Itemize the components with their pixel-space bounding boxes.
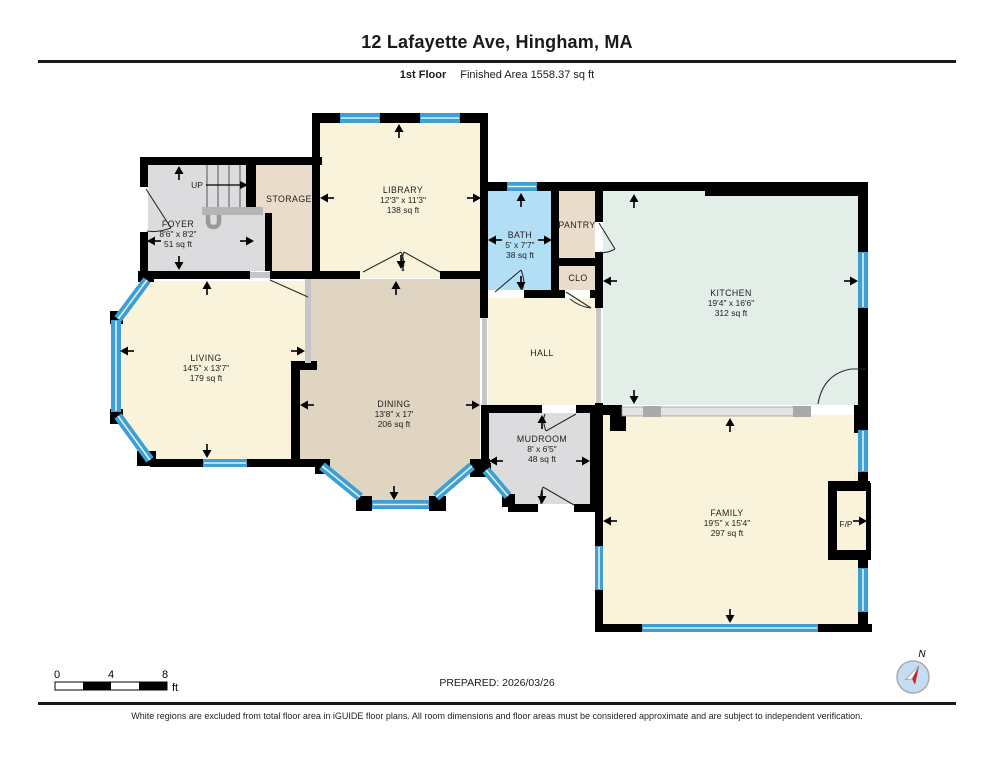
svg-text:KITCHEN: KITCHEN xyxy=(710,288,751,298)
svg-text:51 sq ft: 51 sq ft xyxy=(164,239,193,249)
label-closet: CLO xyxy=(568,273,587,283)
label-fireplace: F/P xyxy=(839,519,853,529)
floorplan-page: 12 Lafayette Ave, Hingham, MA 1st FloorF… xyxy=(0,0,994,768)
svg-text:312 sq ft: 312 sq ft xyxy=(715,308,748,318)
label-pantry: PANTRY xyxy=(558,220,595,230)
svg-text:14'5" x 13'7": 14'5" x 13'7" xyxy=(183,363,230,373)
svg-text:BATH: BATH xyxy=(508,230,532,240)
disclaimer-text: White regions are excluded from total fl… xyxy=(0,711,994,721)
floorplan-svg: UP FOYER 8'6" x 8'2 xyxy=(0,0,994,768)
svg-text:138 sq ft: 138 sq ft xyxy=(387,205,420,215)
svg-text:12'3" x 11'3": 12'3" x 11'3" xyxy=(380,195,426,205)
label-library: LIBRARY 12'3" x 11'3" 138 sq ft xyxy=(380,185,426,215)
label-hall: HALL xyxy=(530,348,554,358)
svg-text:8'6" x 8'2": 8'6" x 8'2" xyxy=(159,229,196,239)
stairs-up-label: UP xyxy=(191,180,203,190)
label-foyer: FOYER 8'6" x 8'2" 51 sq ft xyxy=(159,219,196,249)
svg-text:5' x 7'7": 5' x 7'7" xyxy=(505,240,534,250)
svg-text:19'5" x 15'4": 19'5" x 15'4" xyxy=(704,518,751,528)
svg-text:F/P: F/P xyxy=(839,519,853,529)
compass-n-label: N xyxy=(918,649,926,660)
svg-text:PANTRY: PANTRY xyxy=(558,220,595,230)
svg-text:206 sq ft: 206 sq ft xyxy=(378,419,411,429)
svg-text:HALL: HALL xyxy=(530,348,554,358)
stair-passage-floor xyxy=(248,215,265,271)
label-dining: DINING 13'8" x 17' 206 sq ft xyxy=(375,399,414,429)
svg-text:LIBRARY: LIBRARY xyxy=(383,185,423,195)
svg-text:13'8" x 17': 13'8" x 17' xyxy=(375,409,414,419)
sliding-door xyxy=(622,406,811,417)
prepared-date: PREPARED: 2026/03/26 xyxy=(0,677,994,689)
svg-text:LIVING: LIVING xyxy=(190,353,221,363)
svg-text:8' x 6'5": 8' x 6'5" xyxy=(527,444,556,454)
svg-text:19'4" x 16'6": 19'4" x 16'6" xyxy=(708,298,755,308)
svg-text:48 sq ft: 48 sq ft xyxy=(528,454,557,464)
label-storage: STORAGE xyxy=(266,194,312,204)
svg-text:38 sq ft: 38 sq ft xyxy=(506,250,535,260)
svg-text:STORAGE: STORAGE xyxy=(266,194,312,204)
svg-text:FAMILY: FAMILY xyxy=(710,508,743,518)
svg-text:MUDROOM: MUDROOM xyxy=(517,434,567,444)
label-bath: BATH 5' x 7'7" 38 sq ft xyxy=(505,230,534,260)
svg-text:FOYER: FOYER xyxy=(162,219,194,229)
svg-text:297 sq ft: 297 sq ft xyxy=(711,528,744,538)
svg-text:CLO: CLO xyxy=(568,273,587,283)
svg-text:DINING: DINING xyxy=(377,399,410,409)
footer-rule xyxy=(38,702,956,705)
svg-text:179 sq ft: 179 sq ft xyxy=(190,373,223,383)
